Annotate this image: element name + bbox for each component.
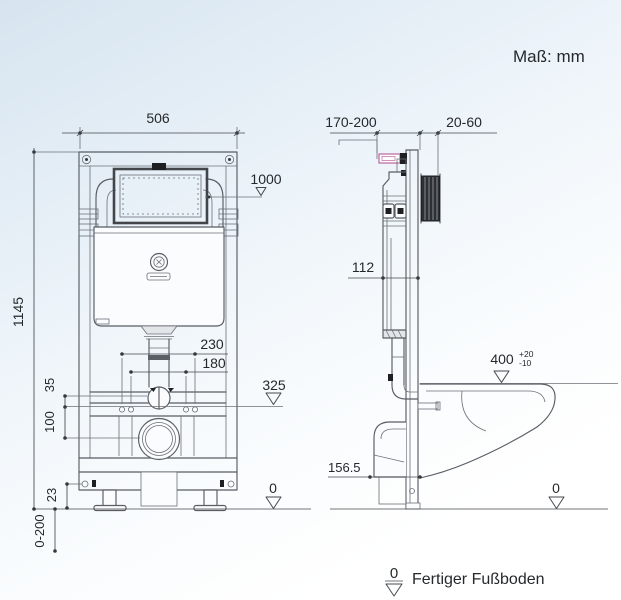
dim-170-200-label: 170-200 <box>325 114 377 130</box>
foot-left <box>103 490 116 506</box>
floor-zero-label-front: 0 <box>269 480 277 496</box>
toilet-bowl-outline <box>420 384 618 479</box>
flush-bend <box>148 387 174 409</box>
flush-pipe-side <box>388 338 440 410</box>
dim-170-200: 170-200 20-60 <box>325 114 497 176</box>
corrugated-sleeve <box>421 174 440 223</box>
window-clip-icon <box>152 163 166 170</box>
foot-side <box>406 503 420 509</box>
dim-1145: 1145 <box>10 148 79 511</box>
floor-zero-label-side: 0 <box>552 480 560 496</box>
dim-23: 23 <box>44 482 82 510</box>
level-triangle-icon <box>266 497 281 509</box>
cistern-side-profile <box>383 159 406 338</box>
legend-zero-label: 0 <box>390 565 398 582</box>
bowl-height-dim: 400 +20 -10 <box>490 349 533 383</box>
foot-bolt-icon <box>228 481 234 487</box>
flush-plate-window <box>114 163 207 223</box>
dim-1145-label: 1145 <box>10 297 26 327</box>
dim-180-label: 180 <box>202 355 226 371</box>
flush-pipe <box>141 326 177 387</box>
dim-112-label: 112 <box>352 259 375 275</box>
dim-156-5-label: 156.5 <box>328 460 361 475</box>
frame-rail <box>406 150 420 509</box>
drain-socket <box>139 419 180 507</box>
dim-230-label: 230 <box>200 336 224 352</box>
dim-506: 506 <box>62 110 245 149</box>
drain-elbow <box>374 422 406 504</box>
level-marker-1000: 1000 <box>205 171 282 199</box>
legend: 0 Fertiger Fußboden <box>385 565 545 596</box>
dim-100-label: 100 <box>42 411 57 433</box>
units-label: Maß: mm <box>513 47 585 66</box>
cistern-tank <box>94 227 224 326</box>
dim-1000-label: 1000 <box>250 171 281 187</box>
level-triangle-icon <box>266 393 281 405</box>
level-triangle-icon <box>256 188 266 196</box>
side-view: 170-200 20-60 112 400 +20 -10 156.5 0 <box>325 114 618 509</box>
dim-20-60-label: 20-60 <box>446 114 482 130</box>
dim-400-tol-minus: -10 <box>519 358 532 368</box>
legend-floor-label: Fertiger Fußboden <box>412 571 545 588</box>
level-triangle-icon <box>386 584 402 596</box>
mounting-stud <box>418 403 438 409</box>
dim-112: 112 <box>348 259 420 280</box>
dim-180: 180 <box>129 355 228 404</box>
legend-zero-icon: 0 <box>385 565 403 596</box>
front-view: 506 1145 1000 230 <box>10 110 311 553</box>
installation-frame-drawing: 506 1145 1000 230 <box>0 0 621 600</box>
drain-outlet-box <box>141 472 177 506</box>
dim-100: 100 <box>42 407 140 440</box>
level-triangle-icon <box>494 371 509 383</box>
floor-level-marker-side: 0 <box>549 480 564 509</box>
dim-506-label: 506 <box>146 110 170 126</box>
technical-drawing-page: 506 1145 1000 230 <box>0 0 621 600</box>
floor-level-marker-front: 0 <box>266 480 281 509</box>
dim-0-200: 0-200 <box>32 507 57 553</box>
level-triangle-icon <box>549 497 564 509</box>
foot-right <box>204 490 217 506</box>
dim-0-200-label: 0-200 <box>32 514 47 547</box>
dim-35-label: 35 <box>42 378 57 392</box>
foot-bolt-icon <box>82 481 88 487</box>
dim-23-label: 23 <box>44 488 59 502</box>
dim-400-label: 400 <box>490 351 514 367</box>
dim-325-label: 325 <box>262 377 286 393</box>
